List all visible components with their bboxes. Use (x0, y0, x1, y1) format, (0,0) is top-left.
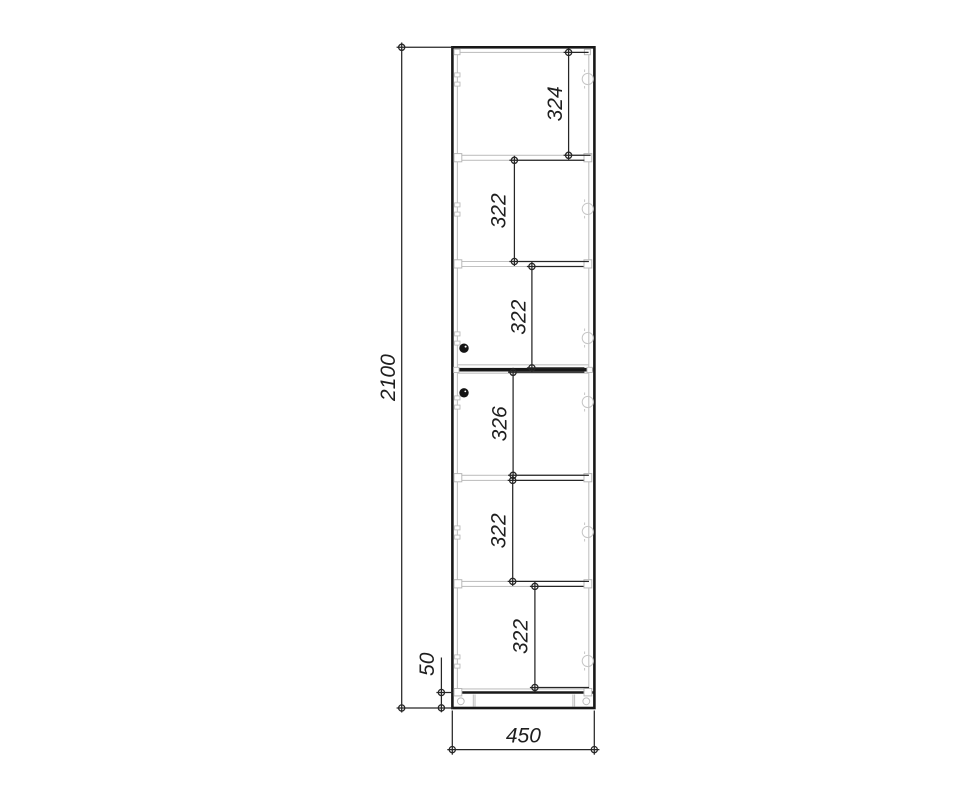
svg-text:326: 326 (489, 406, 512, 441)
svg-text:2100: 2100 (377, 354, 400, 402)
svg-text:324: 324 (544, 86, 567, 121)
svg-text:322: 322 (510, 619, 533, 654)
svg-text:322: 322 (488, 513, 511, 548)
svg-text:322: 322 (487, 193, 510, 228)
svg-text:450: 450 (506, 724, 541, 747)
svg-text:50: 50 (416, 652, 439, 676)
svg-text:322: 322 (507, 299, 530, 334)
